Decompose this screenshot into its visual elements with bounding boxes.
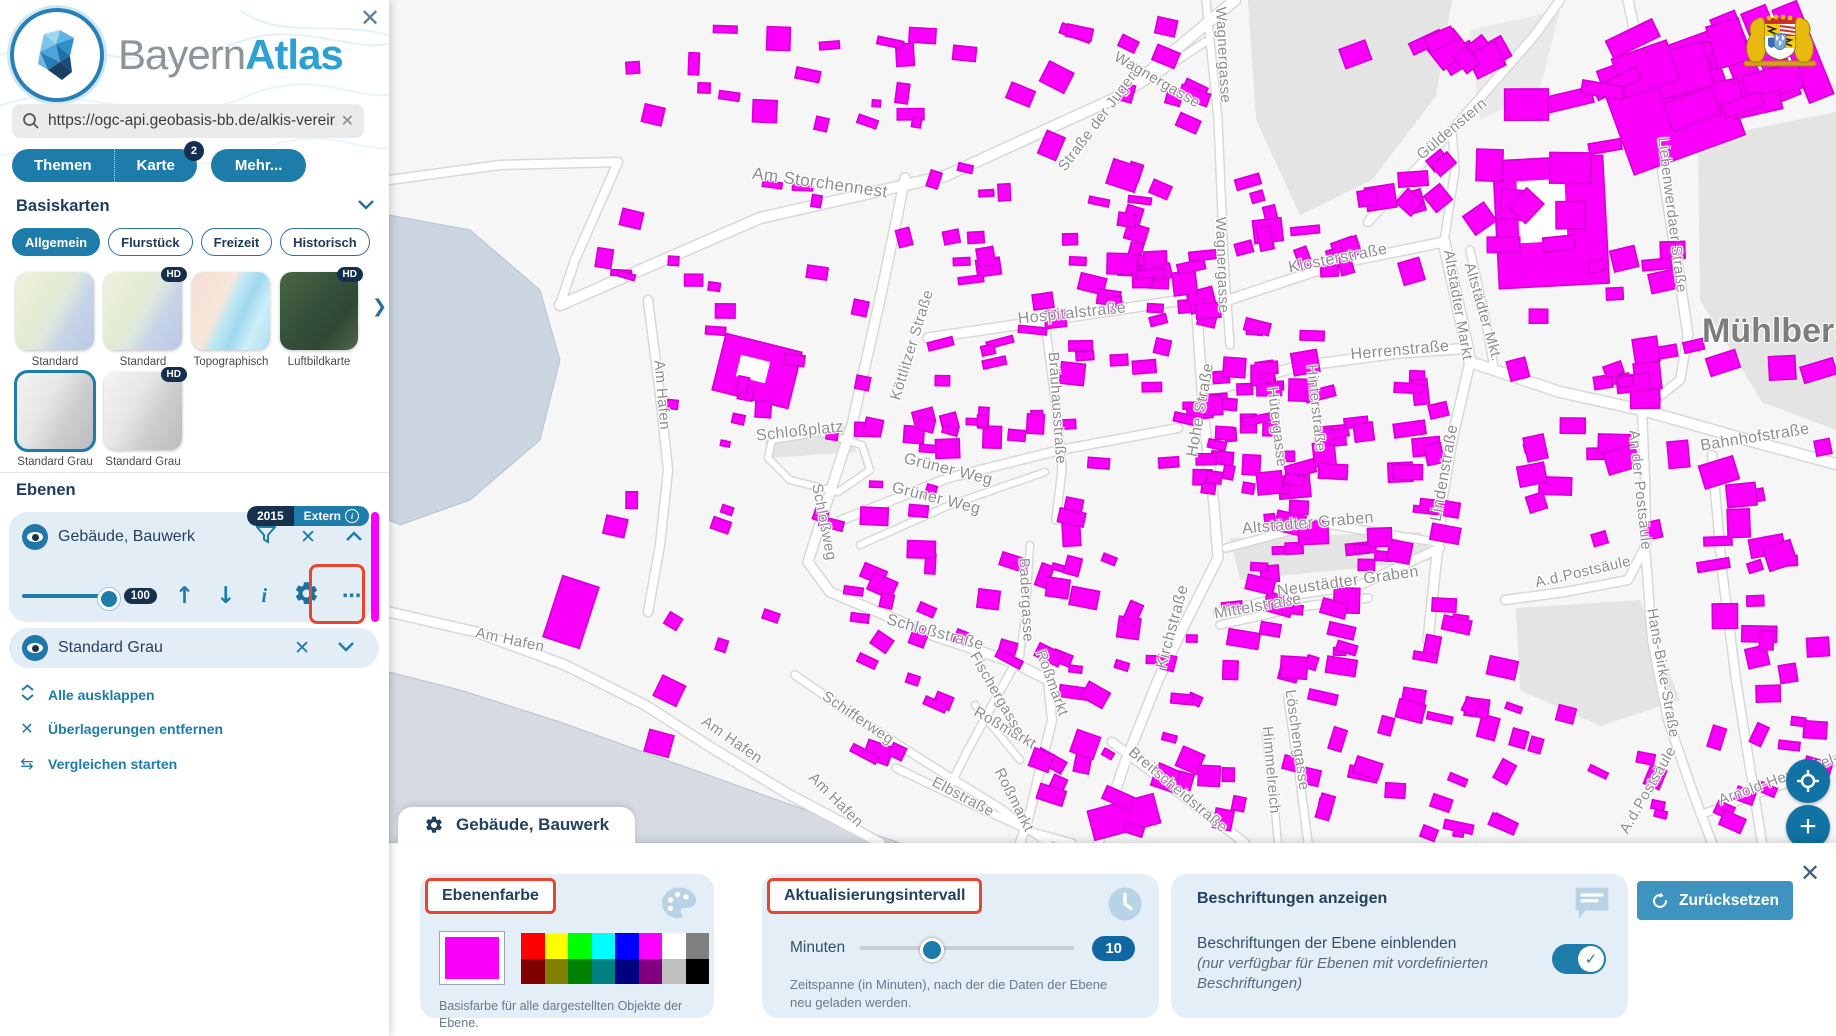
palette-swatch[interactable]	[592, 933, 616, 959]
hd-badge: HD	[337, 267, 363, 282]
color-palette-grid	[521, 933, 709, 984]
chevron-down-icon[interactable]	[358, 200, 374, 210]
layer-info-icon[interactable]: i	[261, 585, 267, 608]
basemap-thumb-standard-grau[interactable]	[16, 372, 94, 450]
palette-swatch[interactable]	[686, 959, 710, 985]
layer-color-bar	[371, 512, 379, 622]
logo-bavaria-icon	[10, 8, 104, 102]
basemap-thumb-topographisch[interactable]	[192, 272, 270, 350]
layer-title: Standard Grau	[58, 639, 163, 657]
hd-badge: HD	[161, 367, 187, 382]
opacity-slider-handle[interactable]	[98, 588, 120, 610]
search-bar[interactable]: https://ogc-api.geobasis-bb.de/alkis-ver…	[12, 104, 364, 138]
farbe-caption: Basisfarbe für alle dargestellten Objekt…	[439, 998, 699, 1032]
palette-swatch[interactable]	[662, 933, 686, 959]
thumb-label: Standard	[12, 356, 98, 368]
toggle-knob-check-icon: ✓	[1578, 946, 1604, 972]
move-layer-down-icon[interactable]: ↓	[216, 583, 235, 609]
move-layer-up-icon[interactable]: ↑	[175, 583, 194, 609]
intervall-highlight-annotation: Aktualisierungsintervall	[767, 878, 982, 914]
palette-icon	[660, 886, 698, 925]
palette-swatch[interactable]	[592, 959, 616, 985]
palette-swatch[interactable]	[521, 933, 545, 959]
extern-badge: Externi	[294, 506, 369, 526]
layer-settings-panel: Gebäude, Bauwerk ✕ Ebenenfarbe Basisfarb…	[389, 843, 1836, 1036]
year-badge: 2015	[247, 506, 294, 526]
panel-close-icon[interactable]: ✕	[1800, 859, 1820, 888]
labels-chat-icon	[1572, 886, 1612, 927]
beschr-line1: Beschriftungen der Ebene einblenden	[1197, 934, 1488, 954]
settings-panel-title: Gebäude, Bauwerk	[456, 815, 609, 835]
link-alle-ausklappen[interactable]: Alle ausklappen	[18, 684, 155, 706]
info-circle-icon: i	[345, 509, 359, 523]
palette-swatch[interactable]	[568, 933, 592, 959]
basemap-thumb-luftbildkarte[interactable]: HD	[280, 272, 358, 350]
opacity-value-badge: 100	[124, 588, 157, 604]
sidebar-close-icon[interactable]: ✕	[360, 4, 380, 33]
palette-swatch[interactable]	[662, 959, 686, 985]
sidebar-panel: ✕ BayernAtlas https://ogc-api.geobasis-b…	[0, 0, 389, 1036]
beschr-line3: Beschriftungen)	[1197, 974, 1488, 994]
palette-swatch[interactable]	[639, 933, 663, 959]
chip-historisch[interactable]: Historisch	[280, 228, 370, 256]
thumb-label: Standard Grau	[100, 456, 186, 468]
clock-icon	[1107, 886, 1143, 927]
layer-remove-icon[interactable]: ✕	[294, 637, 310, 660]
thumb-label: Luftbildkarte	[276, 356, 362, 368]
current-color-swatch[interactable]	[439, 931, 505, 985]
reset-button[interactable]: Zurücksetzen	[1637, 881, 1793, 920]
palette-swatch[interactable]	[545, 933, 569, 959]
opacity-slider[interactable]	[22, 594, 110, 598]
chip-allgemein[interactable]: Allgemein	[12, 228, 100, 256]
palette-swatch[interactable]	[568, 959, 592, 985]
link-vergleichen-starten[interactable]: ⇆ Vergleichen starten	[18, 754, 177, 774]
search-icon	[22, 112, 40, 130]
thumb-label: Topographisch	[188, 356, 274, 368]
geolocate-button[interactable]	[1786, 759, 1830, 803]
hd-badge: HD	[161, 267, 187, 282]
plus-icon: +	[1799, 812, 1817, 842]
beschriftungen-description: Beschriftungen der Ebene einblenden (nur…	[1197, 934, 1488, 993]
gear-highlight-annotation	[309, 564, 365, 624]
gear-icon	[424, 815, 444, 835]
thumb-label: Standard Grau	[12, 456, 98, 468]
card-aktualisierungsintervall: Aktualisierungsintervall Minuten 10 Zeit…	[762, 874, 1159, 1018]
tab-group: Themen Karte 2	[12, 149, 197, 182]
beschriftungen-title: Beschriftungen anzeigen	[1197, 890, 1387, 908]
palette-swatch[interactable]	[521, 959, 545, 985]
interval-slider[interactable]	[860, 946, 1074, 950]
app-logo[interactable]: BayernAtlas	[10, 8, 343, 102]
palette-swatch[interactable]	[615, 959, 639, 985]
filter-icon[interactable]	[256, 526, 276, 549]
current-color-fill	[445, 937, 499, 979]
expand-chevron-down-icon[interactable]	[338, 639, 354, 657]
tab-themen[interactable]: Themen	[12, 149, 114, 182]
bavaria-coat-of-arms	[1738, 12, 1822, 70]
interval-slider-handle[interactable]	[920, 938, 944, 962]
chip-flurstueck[interactable]: Flurstück	[108, 228, 193, 256]
basemap-thumb-standard-grau-hd[interactable]: HD	[104, 372, 182, 450]
layer-visibility-eye-icon[interactable]	[22, 524, 48, 550]
intervall-caption: Zeitspanne (in Minuten), nach der die Da…	[790, 976, 1110, 1011]
layer-remove-icon[interactable]: ✕	[300, 526, 316, 549]
ebenen-heading: Ebenen	[16, 481, 76, 500]
geolocate-icon	[1796, 769, 1820, 793]
card-beschriftungen: Beschriftungen anzeigen Beschriftungen d…	[1171, 874, 1628, 1018]
app-title: BayernAtlas	[118, 31, 343, 79]
link-ueberlagerungen-entfernen[interactable]: ✕ Überlagerungen entfernen	[18, 719, 223, 739]
tab-karte[interactable]: Karte 2	[114, 149, 197, 182]
ebenenfarbe-highlight-annotation: Ebenenfarbe	[425, 878, 556, 914]
layer-visibility-eye-icon[interactable]	[22, 635, 48, 661]
tab-mehr[interactable]: Mehr...	[211, 149, 307, 182]
search-clear-icon[interactable]: ✕	[335, 111, 354, 131]
reset-icon	[1651, 892, 1669, 910]
expand-all-icon	[18, 684, 36, 706]
basiskarten-heading: Basiskarten	[16, 197, 110, 216]
thumbs-scroll-right-icon[interactable]: ❯	[372, 296, 387, 317]
palette-swatch[interactable]	[615, 933, 639, 959]
layer-title: Gebäude, Bauwerk	[58, 528, 195, 546]
palette-swatch[interactable]	[639, 959, 663, 985]
beschr-line2: (nur verfügbar für Ebenen mit vordefinie…	[1197, 954, 1488, 974]
compare-icon: ⇆	[18, 754, 36, 774]
close-icon: ✕	[18, 719, 36, 739]
chip-freizeit[interactable]: Freizeit	[201, 228, 273, 256]
map-city-label: Mühlberg	[1702, 312, 1836, 351]
interval-value-badge: 10	[1092, 936, 1135, 961]
labels-toggle[interactable]: ✓	[1552, 944, 1606, 974]
reset-label: Zurücksetzen	[1679, 892, 1779, 910]
minuten-label: Minuten	[790, 939, 860, 957]
basemap-thumb-standard[interactable]	[16, 272, 94, 350]
palette-swatch[interactable]	[545, 959, 569, 985]
settings-panel-tab: Gebäude, Bauwerk	[398, 807, 635, 843]
card-ebenenfarbe: Ebenenfarbe Basisfarbe für alle dargeste…	[420, 874, 714, 1018]
divider	[0, 472, 389, 473]
search-input[interactable]: https://ogc-api.geobasis-bb.de/alkis-ver…	[48, 112, 335, 130]
karte-count-badge: 2	[184, 141, 204, 161]
basemap-thumb-standard-hd[interactable]: HD	[104, 272, 182, 350]
collapse-chevron-up-icon[interactable]	[346, 528, 362, 546]
palette-swatch[interactable]	[686, 933, 710, 959]
